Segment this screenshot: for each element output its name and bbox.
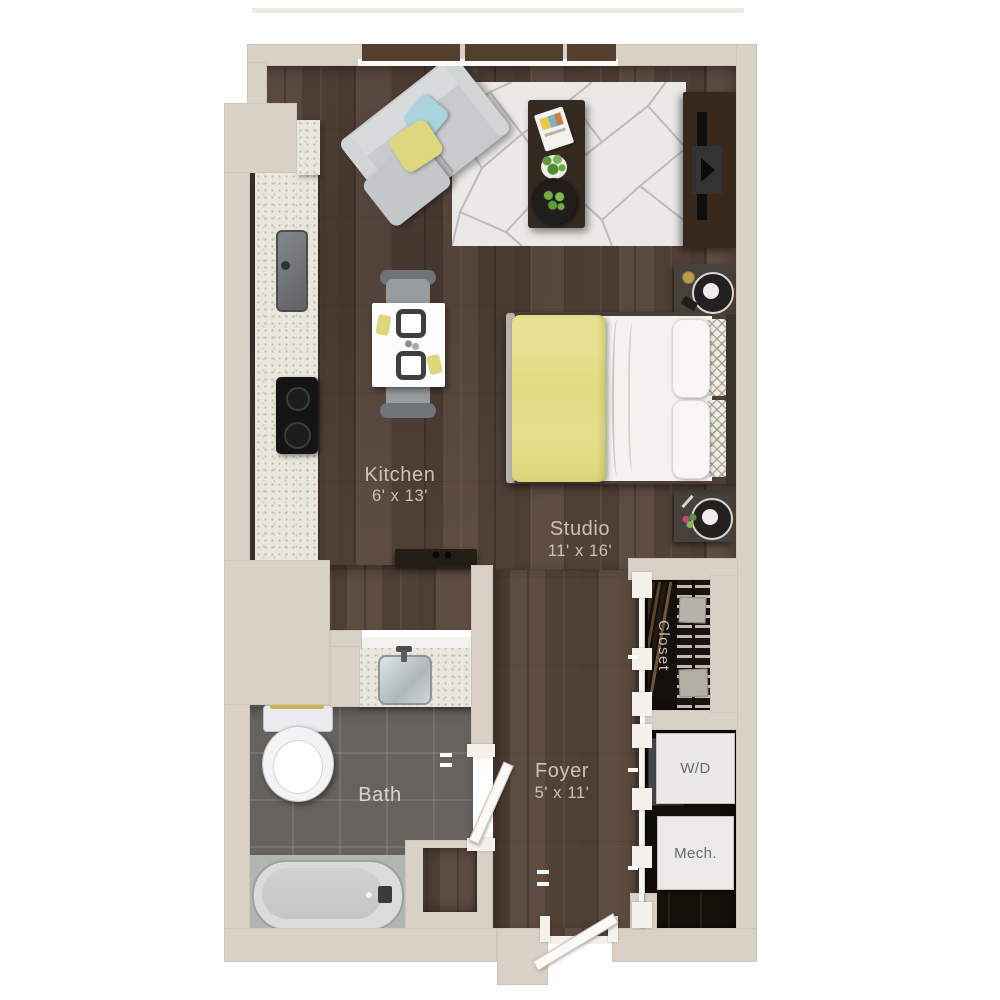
kitchen-label: Kitchen (330, 464, 470, 487)
laundry-door-post-2 (632, 788, 652, 810)
bathtub-basin (262, 868, 382, 919)
closet-door-post-bottom (632, 692, 652, 716)
wall-left (224, 103, 250, 962)
closet-door-post-top (632, 572, 652, 598)
salt-pepper-shakers (404, 339, 420, 351)
candle-top (682, 271, 695, 284)
kitchen-faucet (281, 261, 290, 270)
flowers-bottom (679, 512, 699, 530)
washer-dryer-unit: W/D (656, 733, 735, 804)
upper-faint-edge (252, 8, 744, 13)
bath-door-handle-mark-1 (440, 753, 452, 757)
laundry-door-post-4 (632, 902, 652, 928)
nook-console-knobs (430, 551, 454, 559)
wall-right (736, 44, 757, 958)
laundry-label: W/D (680, 760, 710, 777)
entry-door-handle-mark-1 (537, 870, 549, 874)
wall-topleft-chunk (224, 103, 297, 173)
laundry-door-track (639, 730, 644, 928)
entry-door-handle-mark-2 (537, 882, 549, 886)
wall-closet-east-fill (710, 575, 738, 713)
studio-dims: 11' x 16' (510, 542, 650, 561)
closet-door-handle-icon (628, 655, 638, 659)
wall-bath-west-chunk (224, 560, 330, 705)
bath-door-handle-mark-2 (440, 763, 452, 767)
kitchen-dims: 6' x 13' (330, 487, 470, 506)
laundry-floor-seam-1 (668, 892, 670, 928)
place-setting-top (396, 309, 426, 338)
sheet-crease-2 (628, 322, 640, 474)
tv-play-glyph (701, 158, 715, 182)
lamp-top-inner (703, 283, 719, 299)
sheet-crease-1 (612, 320, 622, 476)
window-pane-1 (362, 44, 460, 61)
place-setting-bottom (396, 351, 426, 380)
laundry-door-handle-icon-2 (628, 866, 638, 870)
magazine-cover-art (539, 112, 564, 130)
toilet-seat (273, 740, 323, 794)
mechanical-label: Mech. (674, 845, 717, 862)
pillow-white-top (672, 319, 710, 398)
closet-storage-box-1 (679, 597, 707, 624)
plant-greens (538, 151, 568, 179)
studio-label: Studio (510, 518, 650, 541)
wall-bath-foyer (471, 565, 493, 757)
fruit-bowl-grapes (540, 187, 568, 215)
closet-door-post-mid (632, 648, 652, 670)
closet-storage-box-2 (679, 669, 709, 698)
floor-plan: W/D Mech. Kitchen 6' x 13' Studio 11' x … (0, 0, 1000, 1000)
pillow-white-bottom (672, 400, 710, 479)
tub-faucet (378, 886, 392, 903)
bed-headboard (726, 314, 736, 484)
laundry-floor-seam-2 (700, 892, 702, 928)
bath-label: Bath (330, 784, 430, 807)
laundry-door-post-1 (632, 724, 652, 748)
chair-back (380, 403, 436, 418)
vanity-sink (378, 655, 432, 705)
mechanical-unit: Mech. (657, 816, 734, 890)
bath-doorjamb-top (467, 744, 495, 757)
window-pane-2 (465, 44, 563, 61)
foyer-dims: 5' x 11' (492, 784, 632, 803)
foyer-floor (493, 570, 640, 930)
bath-nook-floor (330, 565, 473, 630)
stove-burner-2 (284, 422, 311, 449)
laundry-door-post-3 (632, 846, 652, 868)
bed-blanket-yellow (512, 315, 606, 482)
kitchen-sink (276, 230, 308, 312)
vanity-top-edge (358, 637, 475, 648)
entry-nook-dark-floor (423, 848, 477, 912)
tub-drain (366, 892, 372, 898)
wall-bottom-left (224, 928, 497, 962)
wall-bottom-right (612, 928, 757, 962)
foyer-label: Foyer (492, 760, 632, 783)
stove-burner-1 (286, 387, 310, 411)
closet-label: Closet (650, 620, 672, 720)
lamp-bottom-inner (702, 509, 718, 525)
vanity-faucet-stem (401, 650, 407, 662)
wall-vanity-left (330, 646, 360, 707)
entry-doorjamb-left (540, 916, 550, 942)
kitchen-counter-upper-piece (297, 120, 320, 175)
window-pane-3 (567, 44, 616, 61)
